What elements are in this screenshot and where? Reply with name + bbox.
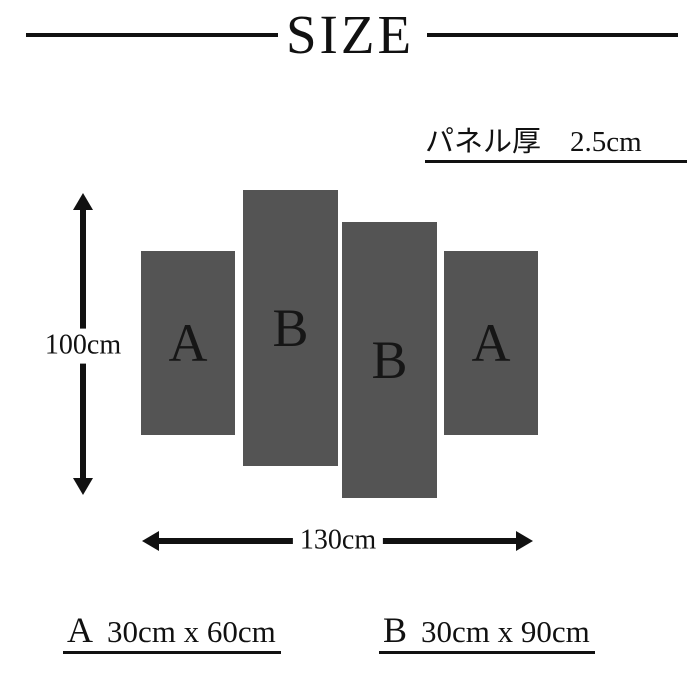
panel-label: B (371, 333, 407, 387)
legend-dimensions-b: 30cm x 90cm (421, 614, 590, 649)
panel-a-left: A (141, 251, 235, 435)
legend-item-a: A30cm x 60cm (63, 612, 281, 654)
legend-letter-b: B (383, 610, 407, 650)
size-infographic: SIZE パネル厚 2.5cm A B B A 100cm 130cm A30c… (0, 0, 700, 700)
panel-label: A (472, 316, 511, 370)
legend-item-b: B30cm x 90cm (379, 612, 595, 654)
panel-thickness-note: パネル厚 2.5cm (425, 126, 687, 163)
height-dimension-label: 100cm (44, 329, 122, 364)
panel-b-left: B (243, 190, 338, 466)
arrowhead-right-icon (516, 531, 533, 551)
panel-label: B (272, 301, 308, 355)
title-rule-right (427, 33, 678, 37)
width-dimension-label: 130cm (293, 525, 383, 558)
panel-label: A (169, 316, 208, 370)
legend-dimensions-a: 30cm x 60cm (107, 614, 276, 649)
panel-b-right: B (342, 222, 437, 498)
panel-a-right: A (444, 251, 538, 435)
arrowhead-down-icon (73, 478, 93, 495)
legend-letter-a: A (67, 610, 93, 650)
